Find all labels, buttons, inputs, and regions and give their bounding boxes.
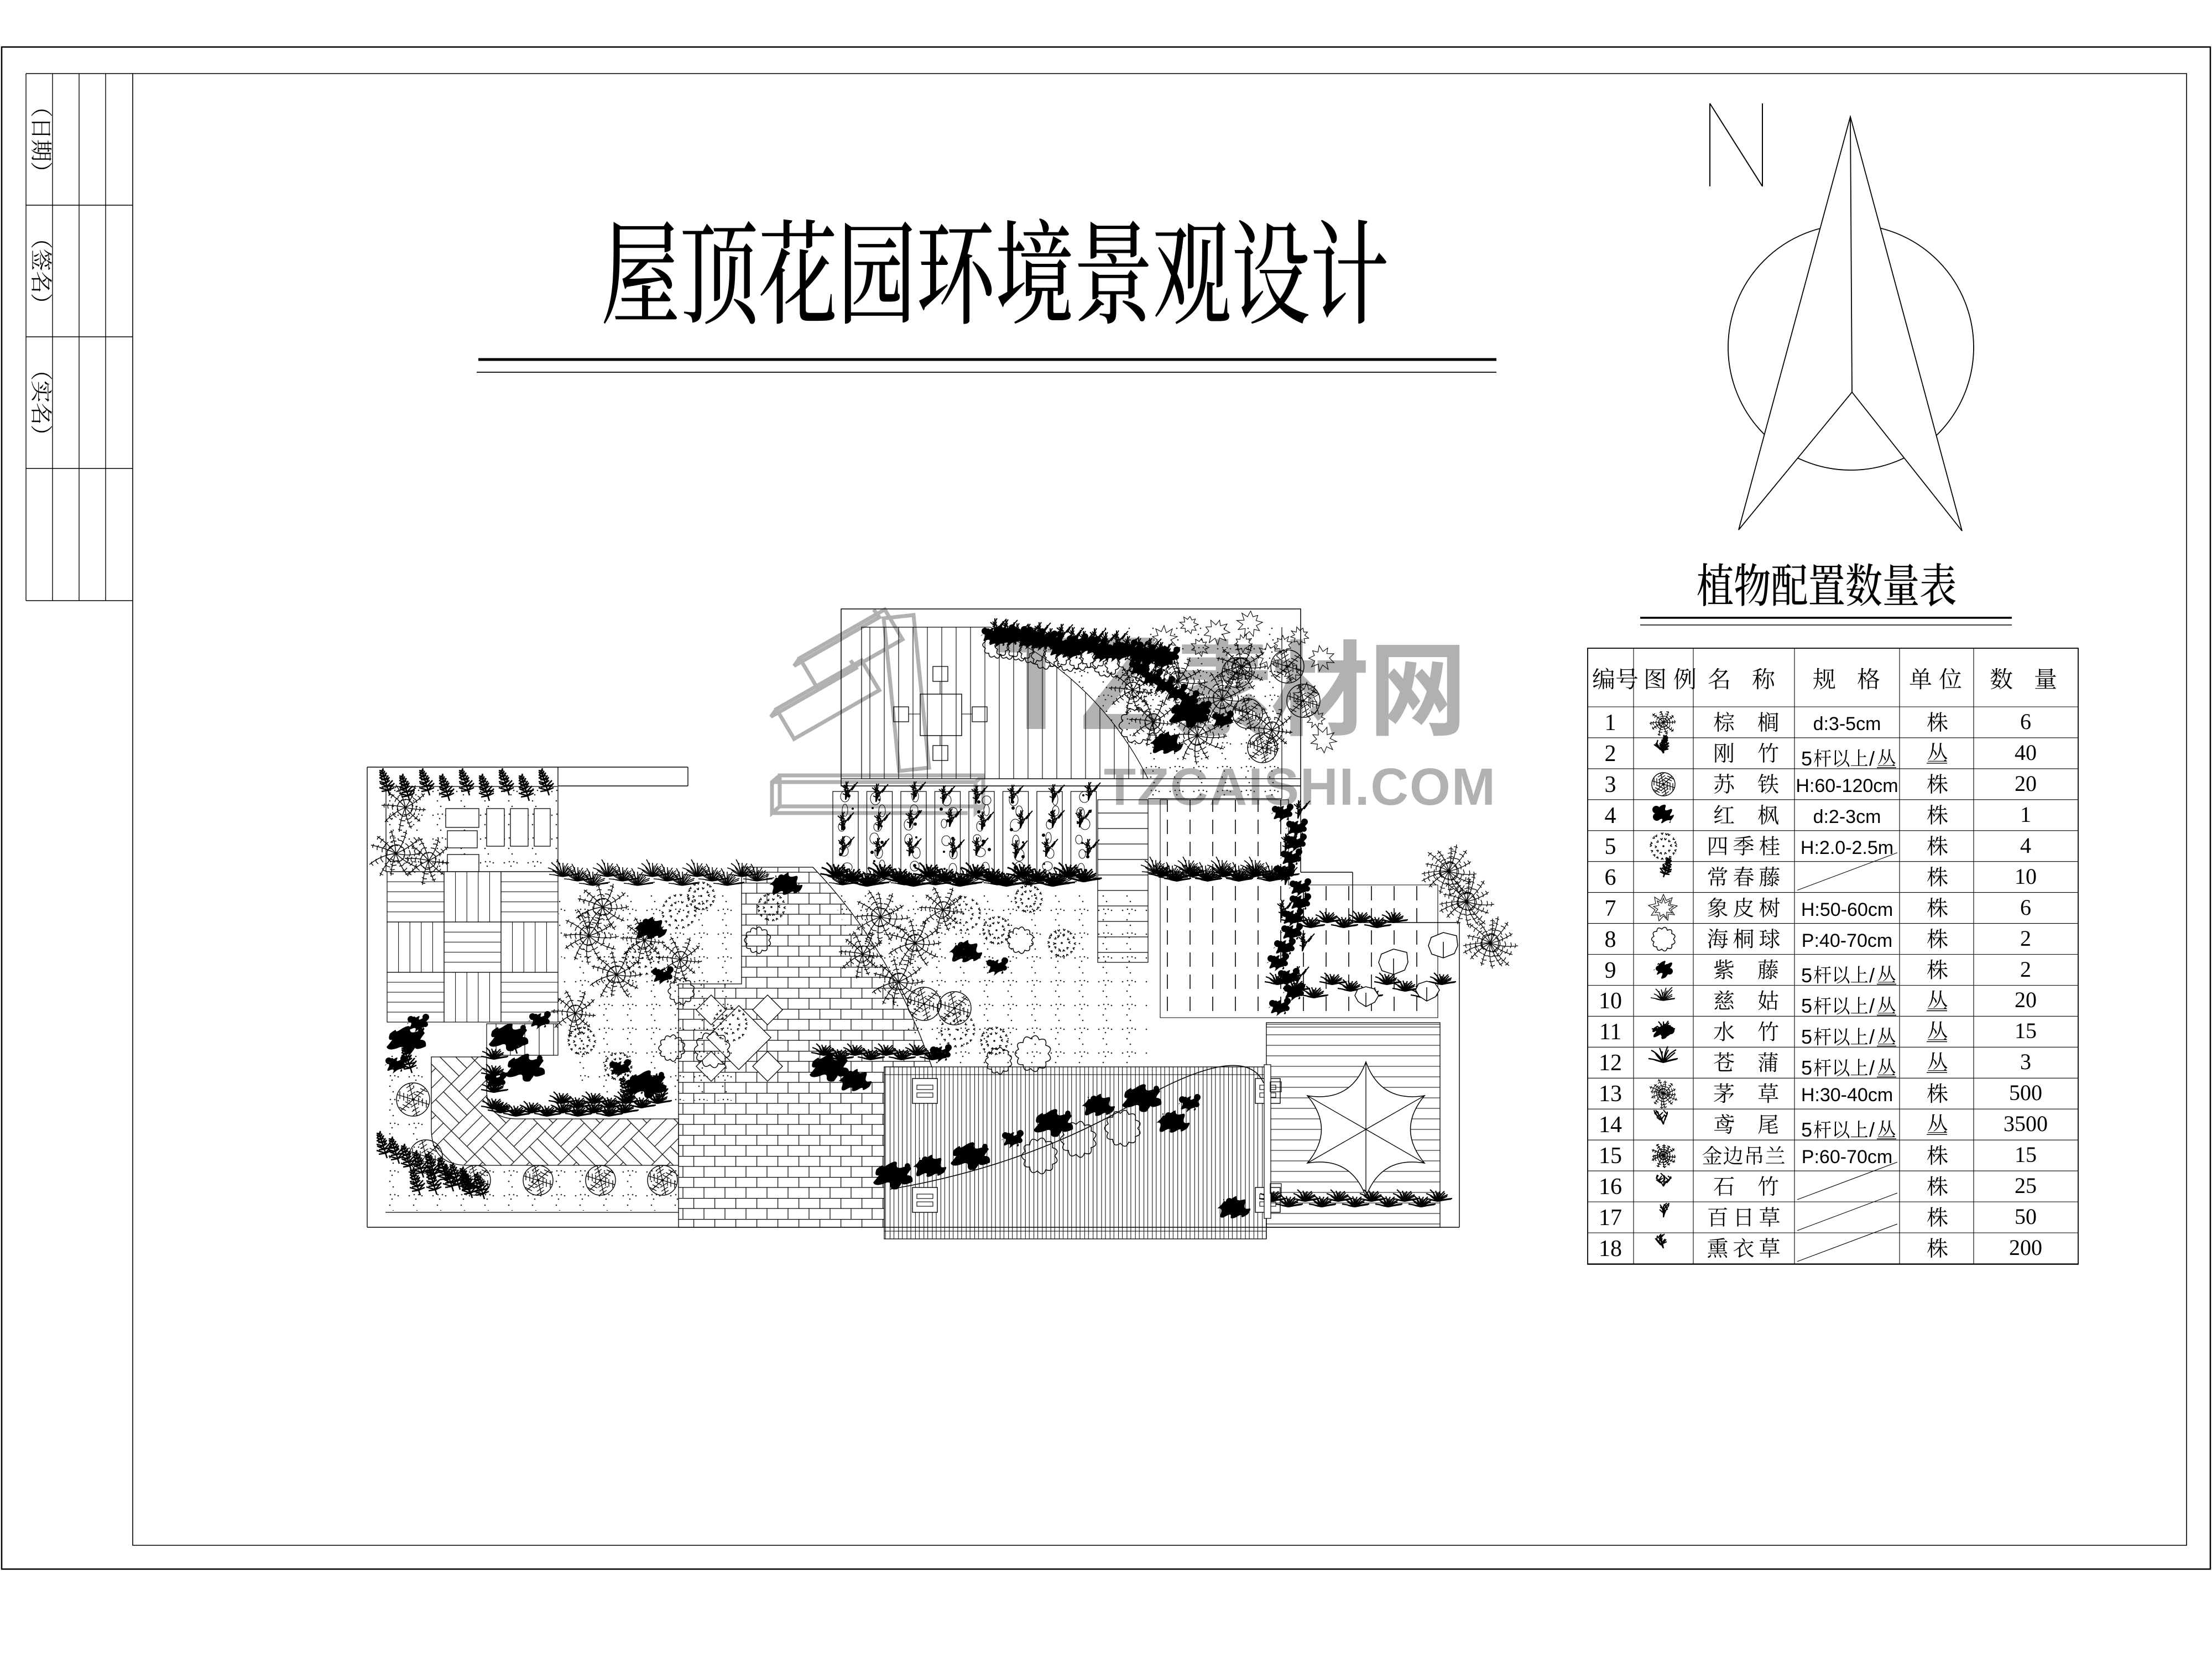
svg-text:2: 2 (2020, 926, 2031, 951)
svg-text:5: 5 (1801, 1056, 1812, 1079)
svg-text:3: 3 (1605, 772, 1616, 798)
svg-text:40: 40 (2015, 740, 2037, 765)
svg-text:11: 11 (1599, 1019, 1621, 1045)
svg-text:/: / (1869, 964, 1875, 987)
svg-text:d:3-5cm: d:3-5cm (1813, 713, 1881, 734)
svg-text:5: 5 (1801, 747, 1812, 770)
svg-text:H:50-60cm: H:50-60cm (1801, 899, 1893, 920)
svg-text:10: 10 (1599, 988, 1622, 1014)
svg-text:20: 20 (2015, 987, 2037, 1012)
svg-text:15: 15 (1599, 1143, 1622, 1169)
svg-text:5: 5 (1605, 834, 1616, 859)
svg-text:50: 50 (2015, 1204, 2037, 1229)
svg-text:2: 2 (1605, 741, 1616, 767)
svg-text:8: 8 (1605, 927, 1616, 952)
svg-text:P:60-70cm: P:60-70cm (1802, 1147, 1892, 1168)
svg-text:5: 5 (1801, 1118, 1812, 1141)
svg-text:4: 4 (1605, 803, 1616, 829)
svg-text:/: / (1869, 747, 1875, 770)
svg-text:3500: 3500 (2004, 1111, 2048, 1136)
svg-text:5: 5 (1801, 994, 1812, 1017)
svg-text:H:30-40cm: H:30-40cm (1801, 1085, 1893, 1106)
svg-text:200: 200 (2009, 1235, 2042, 1260)
svg-text:/: / (1869, 994, 1875, 1017)
svg-text:H:60-120cm: H:60-120cm (1796, 775, 1898, 796)
svg-text:13: 13 (1599, 1081, 1622, 1107)
svg-text:20: 20 (2015, 771, 2037, 796)
svg-text:15: 15 (2015, 1142, 2037, 1167)
svg-text:5: 5 (1801, 964, 1812, 987)
svg-text:14: 14 (1599, 1112, 1622, 1138)
svg-text:H:2.0-2.5m: H:2.0-2.5m (1801, 837, 1893, 858)
svg-text:10: 10 (2015, 864, 2037, 889)
svg-text:2: 2 (2020, 957, 2031, 982)
svg-text:P:40-70cm: P:40-70cm (1802, 930, 1892, 951)
svg-text:12: 12 (1599, 1050, 1622, 1076)
svg-text:16: 16 (1599, 1174, 1622, 1200)
svg-text:/: / (1869, 1056, 1875, 1079)
svg-text:9: 9 (1605, 958, 1616, 983)
svg-text:15: 15 (2015, 1018, 2037, 1043)
svg-text:6: 6 (2020, 709, 2031, 734)
svg-text:7: 7 (1605, 896, 1616, 921)
svg-text:6: 6 (2020, 895, 2031, 920)
svg-text:4: 4 (2020, 833, 2031, 858)
svg-text:d:2-3cm: d:2-3cm (1813, 806, 1881, 827)
svg-text:1: 1 (1605, 710, 1616, 736)
svg-text:500: 500 (2009, 1080, 2042, 1105)
svg-text:25: 25 (2015, 1173, 2037, 1198)
svg-text:1: 1 (2020, 802, 2031, 827)
svg-text:6: 6 (1605, 865, 1616, 890)
svg-text:3: 3 (2020, 1049, 2031, 1074)
svg-text:/: / (1869, 1118, 1875, 1141)
svg-text:17: 17 (1599, 1205, 1622, 1231)
svg-text:5: 5 (1801, 1025, 1812, 1048)
svg-text:/: / (1869, 1025, 1875, 1048)
svg-text:18: 18 (1599, 1236, 1622, 1262)
